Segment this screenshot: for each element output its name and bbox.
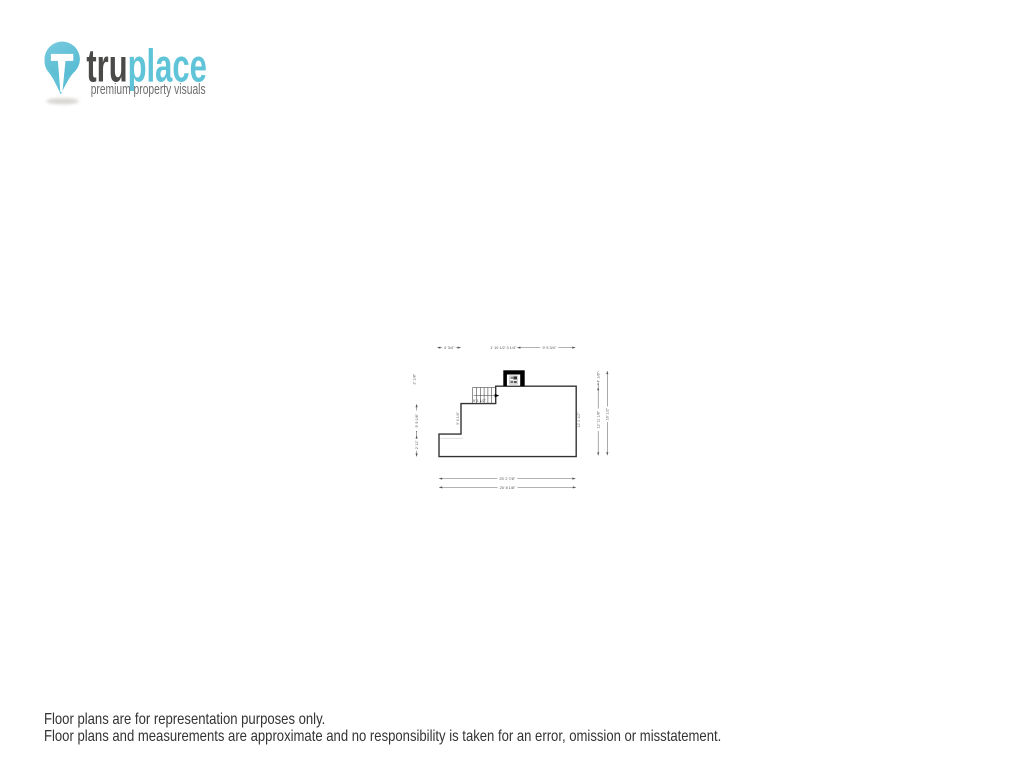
- svg-text:9' 8 1/8": 9' 8 1/8": [456, 411, 460, 425]
- svg-text:premium property visuals: premium property visuals: [91, 81, 206, 98]
- svg-text:9' 5 3/4": 9' 5 3/4": [542, 346, 556, 350]
- svg-text:4' 1/8": 4' 1/8": [596, 371, 600, 382]
- svg-text:2' 11": 2' 11": [415, 439, 419, 449]
- svg-text:1' 10 1/2' 3 1/4": 1' 10 1/2' 3 1/4": [490, 346, 517, 350]
- svg-text:25' 8 1/8": 25' 8 1/8": [500, 486, 516, 490]
- svg-text:9' 1 1/2": 9' 1 1/2": [473, 399, 487, 403]
- svg-text:9' 9 1/8": 9' 9 1/8": [415, 413, 419, 427]
- svg-text:2' 1/8": 2' 1/8": [413, 373, 417, 384]
- svg-text:25' 2 7/8": 25' 2 7/8": [499, 477, 515, 481]
- svg-text:12' 2 1/2": 12' 2 1/2": [577, 412, 581, 428]
- svg-text:12' 11 1/8": 12' 11 1/8": [596, 410, 600, 428]
- svg-text:4' 3/4": 4' 3/4": [444, 346, 455, 350]
- svg-text:16' 1/2": 16' 1/2": [606, 407, 610, 420]
